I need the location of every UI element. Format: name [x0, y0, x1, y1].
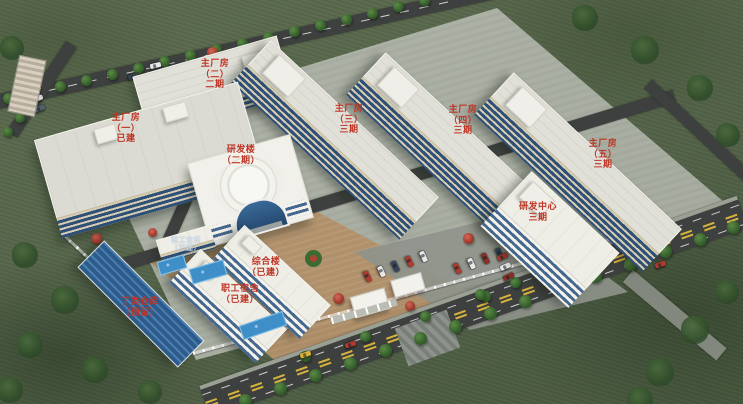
label-line: （已建）	[156, 244, 216, 252]
label-line: 丁类仓库	[104, 297, 176, 308]
tree	[55, 81, 66, 92]
label-main-factory-1: 主厂房 （一） 已建	[98, 113, 154, 145]
tree	[367, 8, 378, 19]
car	[654, 260, 666, 268]
label-line: 综合楼	[238, 257, 294, 268]
label-line: （已建）	[238, 268, 294, 279]
label-main-factory-4: 主厂房 （四） 三期	[435, 105, 491, 137]
tree	[419, 0, 430, 6]
flower-bush	[463, 233, 474, 244]
label-line: 主厂房	[575, 139, 631, 150]
tree-clump	[681, 316, 709, 344]
tree-clump	[715, 280, 739, 304]
tree	[510, 277, 521, 288]
tree	[379, 344, 392, 357]
label-line: （五）	[575, 150, 631, 161]
label-line: （预留）	[104, 308, 176, 319]
tree-clump	[627, 387, 653, 404]
label-rd-building: 研发楼 （二期）	[213, 145, 269, 166]
tree	[81, 75, 92, 86]
label-main-factory-5: 主厂房 （五） 三期	[575, 139, 631, 171]
label-main-factory-3: 主厂房 （三） 三期	[321, 104, 377, 136]
label-line: 职工食堂	[156, 236, 216, 244]
label-class-d-warehouse: 丁类仓库 （预留）	[104, 297, 176, 318]
flower-bush	[333, 293, 344, 304]
tree-clump	[0, 377, 23, 403]
label-line: （二期）	[213, 156, 269, 167]
label-main-factory-2: 主厂房 （二） 二期	[187, 59, 243, 91]
tree	[475, 289, 486, 300]
round-garden	[305, 250, 322, 267]
tree	[414, 332, 427, 345]
label-line: 主厂房	[187, 59, 243, 70]
tree-clump	[631, 36, 659, 64]
tree	[449, 320, 462, 333]
tree	[107, 69, 118, 80]
label-line: （一）	[98, 124, 154, 135]
tree	[309, 369, 322, 382]
tree	[519, 295, 532, 308]
label-line: 三期	[321, 125, 377, 136]
label-staff-canteen: 职工食堂 （已建）	[156, 236, 216, 252]
label-line: 已建	[98, 134, 154, 145]
flower-bush	[91, 233, 102, 244]
tree	[420, 311, 431, 322]
tree-clump	[687, 75, 713, 101]
label-line: 主厂房	[321, 104, 377, 115]
label-line: （三）	[321, 115, 377, 126]
label-line: 三期	[500, 213, 576, 224]
tree	[360, 331, 371, 342]
tree	[341, 14, 352, 25]
tree	[3, 127, 13, 137]
label-line: 三期	[435, 126, 491, 137]
tree	[274, 382, 287, 395]
tree-clump	[572, 5, 598, 31]
label-line: 主厂房	[98, 113, 154, 124]
label-rd-center: 研发中心 三期	[500, 202, 576, 223]
road-branch-east	[623, 270, 727, 361]
tree-clump	[82, 357, 108, 383]
label-complex-building: 综合楼 （已建）	[238, 257, 294, 278]
tree	[315, 20, 326, 31]
label-line: 研发楼	[213, 145, 269, 156]
tree	[289, 26, 300, 37]
label-line: （四）	[435, 116, 491, 127]
wing-windows	[284, 199, 309, 219]
flower-bush	[405, 301, 415, 311]
label-line: 职工宿舍	[204, 284, 276, 295]
tree-clump	[716, 123, 740, 147]
tree	[727, 221, 740, 234]
tree-clump	[646, 358, 674, 386]
tree	[694, 233, 707, 246]
tree	[133, 63, 144, 74]
tree	[344, 357, 357, 370]
tree-clump	[138, 380, 162, 404]
label-line: 二期	[187, 80, 243, 91]
label-staff-dormitory: 职工宿舍 （已建）	[204, 284, 276, 305]
label-line: （已建）	[204, 295, 276, 306]
tree-clump	[12, 242, 38, 268]
label-line: 主厂房	[435, 105, 491, 116]
tree-clump	[51, 286, 79, 314]
label-line: 研发中心	[500, 202, 576, 213]
tree	[393, 1, 404, 12]
label-line: 三期	[575, 160, 631, 171]
tree-clump	[17, 332, 43, 358]
tree	[239, 394, 252, 404]
aerial-rendering: 主厂房 （一） 已建 主厂房 （二） 二期 主厂房 （三） 三期 主厂房 （四）…	[0, 0, 743, 404]
label-line: （二）	[187, 70, 243, 81]
tree	[484, 307, 497, 320]
